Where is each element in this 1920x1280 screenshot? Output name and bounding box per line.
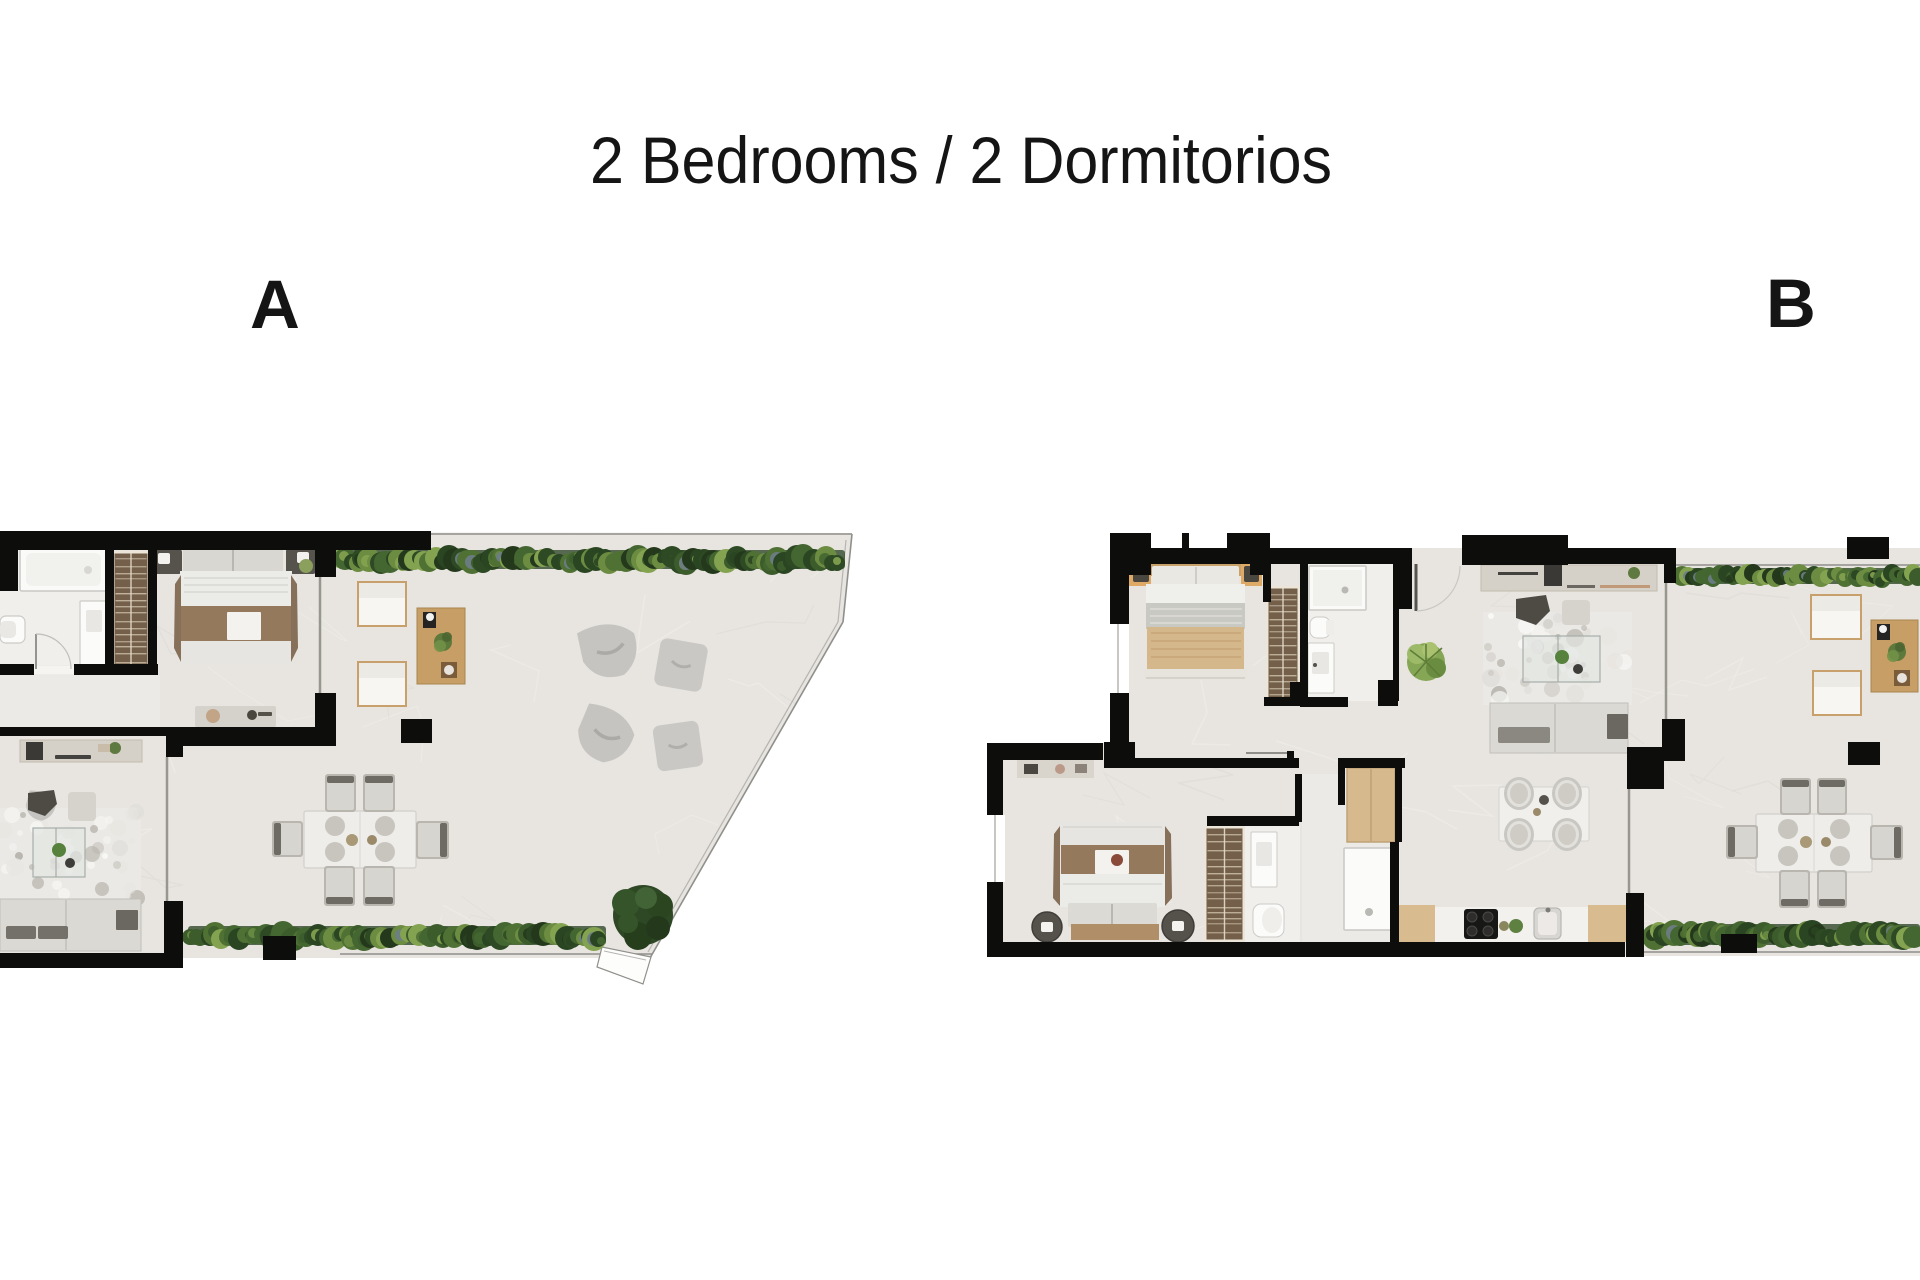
svg-text:B: B [1766,265,1816,342]
svg-text:2 Bedrooms / 2 Dormitorios: 2 Bedrooms / 2 Dormitorios [590,123,1332,197]
svg-text:A: A [250,266,300,343]
